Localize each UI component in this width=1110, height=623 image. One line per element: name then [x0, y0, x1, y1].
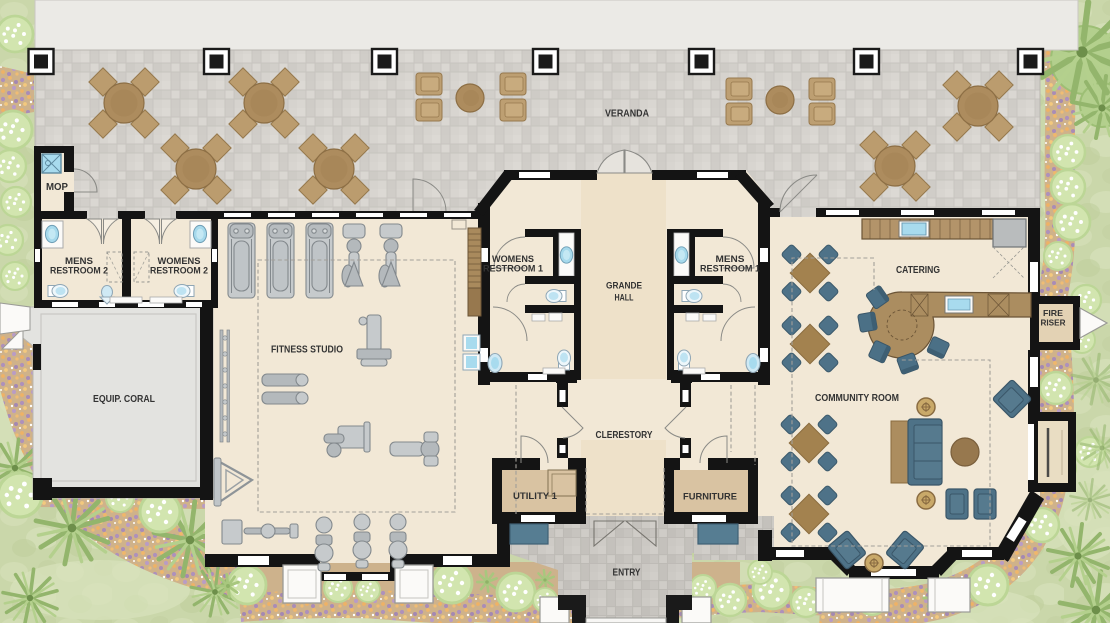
svg-text:VERANDA: VERANDA	[605, 109, 649, 120]
svg-text:HALL: HALL	[615, 293, 634, 304]
svg-text:RESTROOM 1: RESTROOM 1	[700, 264, 761, 275]
svg-text:ENTRY: ENTRY	[613, 568, 641, 579]
svg-text:FURNITURE: FURNITURE	[683, 492, 737, 503]
svg-text:FIRE: FIRE	[1043, 308, 1063, 318]
svg-text:FITNESS STUDIO: FITNESS STUDIO	[271, 344, 343, 356]
svg-text:RESTROOM 2: RESTROOM 2	[50, 266, 108, 277]
svg-text:CATERING: CATERING	[896, 265, 940, 276]
svg-text:CLERESTORY: CLERESTORY	[596, 430, 653, 441]
svg-text:RISER: RISER	[1041, 318, 1066, 328]
svg-text:UTILITY 1: UTILITY 1	[513, 491, 558, 502]
svg-text:GRANDE: GRANDE	[606, 281, 642, 292]
svg-text:COMMUNITY ROOM: COMMUNITY ROOM	[815, 393, 899, 404]
svg-text:RESTROOM 1: RESTROOM 1	[483, 264, 544, 275]
svg-text:MOP: MOP	[46, 182, 68, 193]
svg-text:RESTROOM 2: RESTROOM 2	[150, 266, 208, 277]
svg-text:EQUIP. CORAL: EQUIP. CORAL	[93, 393, 155, 405]
